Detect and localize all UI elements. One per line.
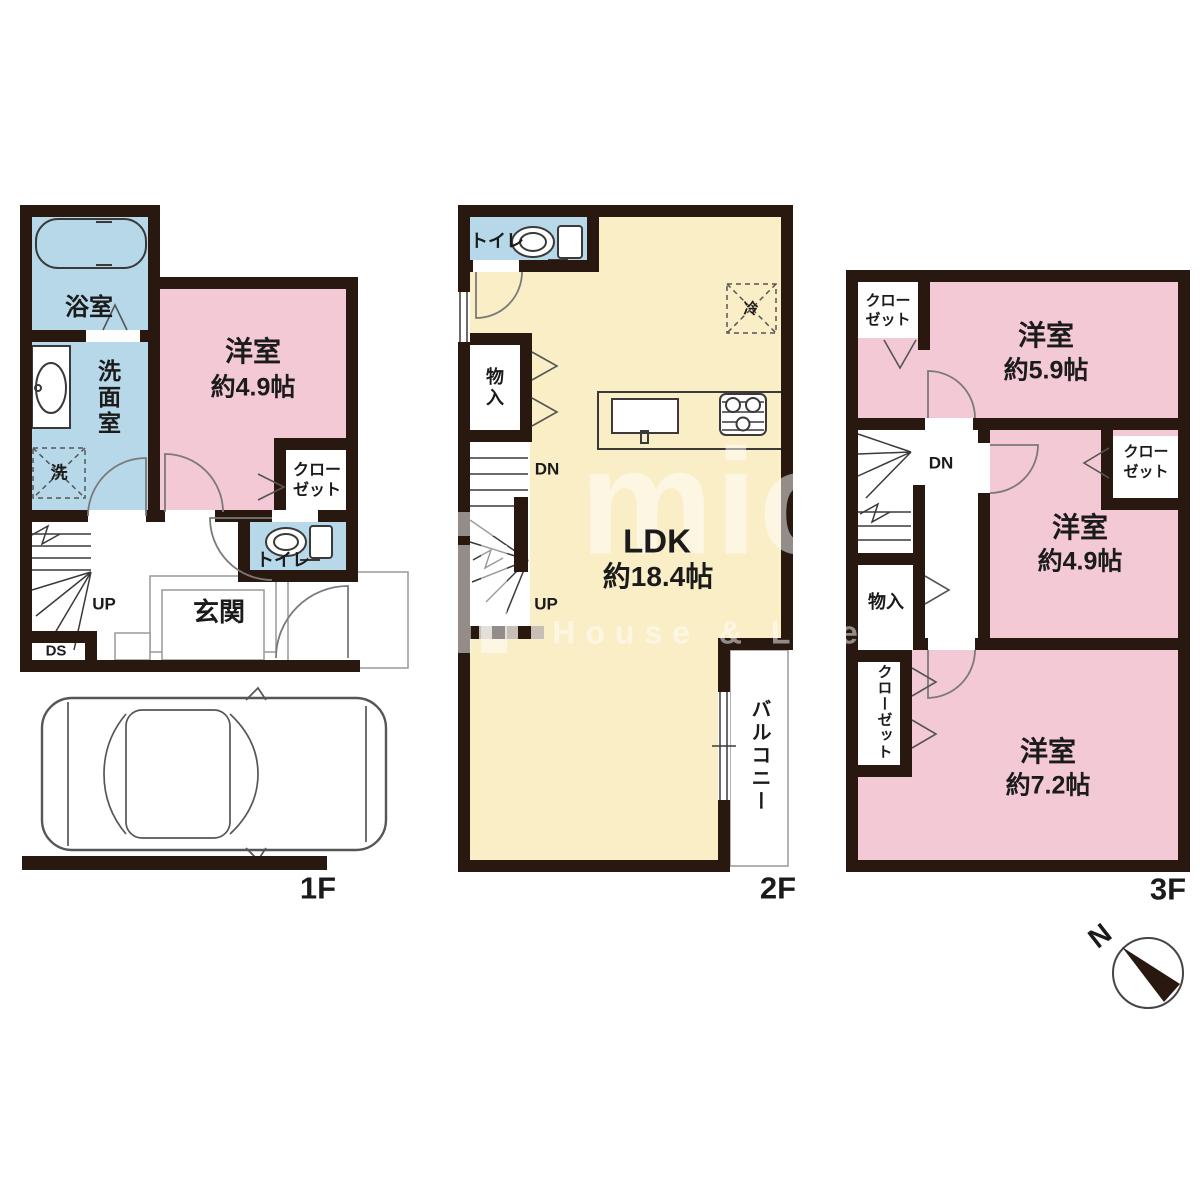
compass-icon <box>1113 938 1183 1008</box>
room-size-western72-3f: 約7.2帖 <box>1006 774 1091 799</box>
label-storage-3f: 物入 <box>868 593 904 611</box>
label-storage-2f: 物入 <box>485 367 503 409</box>
room-label-western59-3f: 洋室 <box>1018 322 1074 350</box>
stair-landing-strip-2f <box>466 626 544 639</box>
floorplan-drawing <box>0 0 1200 1200</box>
duct-space-label-1f: DS <box>46 644 67 659</box>
room-label-toilet-2f: トイレ <box>470 232 524 250</box>
floor-tag-3f: 3F <box>1150 874 1186 905</box>
floor-tag-2f: 2F <box>760 873 796 904</box>
closet-label-1f-line2: ゼット <box>293 483 341 499</box>
stairs-dn-label-2f: DN <box>535 461 560 478</box>
stairs-dn-label-3f: DN <box>929 455 954 472</box>
closet-a-label-3f-line2: ゼット <box>865 313 910 328</box>
washbasin-icon <box>32 346 70 428</box>
room-size-western49-3f: 約4.9帖 <box>1038 550 1123 575</box>
room-label-washroom-1f: 洗面室 <box>96 359 119 437</box>
room-western72-3f-corner <box>858 777 912 860</box>
room-label-ldk-2f: LDK <box>623 525 691 558</box>
room-label-western-1f: 洋室 <box>225 338 281 366</box>
closet-a-label-3f-line1: クロー <box>865 294 910 309</box>
shoe-box <box>115 633 150 660</box>
parking-ground-line <box>22 856 327 870</box>
stairs-up-label-2f: UP <box>534 596 558 613</box>
room-size-ldk-2f: 約18.4帖 <box>603 563 714 591</box>
closet-1f <box>286 450 346 510</box>
floorplan-page: mic House & Life 浴室 洗面室 洗 洋室 約4.9帖 クロー ゼ… <box>0 0 1200 1200</box>
room-size-western-1f: 約4.9帖 <box>211 376 296 401</box>
room-label-western72-3f: 洋室 <box>1020 738 1076 766</box>
room-ldk-2f-lower <box>470 650 718 860</box>
closet-b-label-3f-line1: クロー <box>1123 445 1168 460</box>
label-washer-1f: 洗 <box>51 465 68 482</box>
stove-icon <box>720 394 766 435</box>
label-balcony-2f: バルコニー <box>749 699 769 814</box>
stairs-3f <box>858 434 911 540</box>
room-label-entrance-1f: 玄関 <box>193 599 245 625</box>
stairs-up-label-1f: UP <box>92 596 116 613</box>
room-label-western49-3f: 洋室 <box>1052 514 1108 542</box>
closet-a-3f <box>858 282 918 338</box>
label-refrigerator-2f: 冷 <box>743 302 758 317</box>
room-label-bath-1f: 浴室 <box>65 296 113 320</box>
car-icon <box>42 688 386 860</box>
room-label-toilet-1f: トイレ <box>256 551 310 569</box>
floor-tag-1f: 1F <box>300 873 336 904</box>
room-size-western59-3f: 約5.9帖 <box>1004 359 1089 384</box>
closet-label-1f-line1: クロー <box>293 463 341 479</box>
closet-c-label-3f: クローゼット <box>877 664 892 760</box>
closet-b-label-3f-line2: ゼット <box>1123 465 1168 480</box>
